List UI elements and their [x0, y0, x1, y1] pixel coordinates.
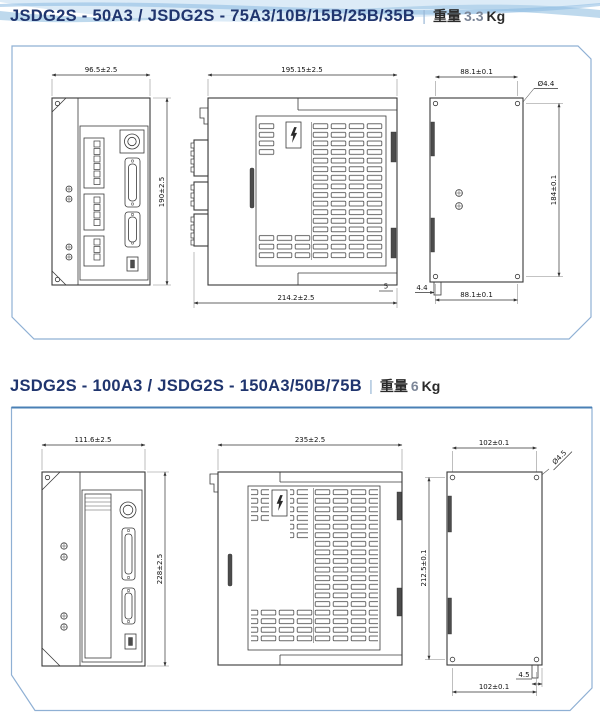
edge-slot [391, 228, 396, 258]
vent-grid [312, 122, 384, 260]
mounting-hook [210, 474, 218, 492]
dimension-label: 88.1±0.1 [460, 68, 493, 76]
dimension-label: 184±0.1 [550, 175, 558, 205]
weight-label: 重量 [433, 6, 461, 26]
width-dimension: 88.1±0.1 [436, 68, 518, 96]
dimension-label: 96.5±2.5 [85, 66, 118, 74]
dimension-label: 190±2.5 [158, 177, 166, 207]
front-view-small-drive: 96.5±2.5 [28, 62, 180, 306]
side-view-large-drive: 235±2.5 [188, 428, 412, 690]
weight-value: 6 [411, 378, 419, 394]
height-dimension: 228±2.5 [147, 472, 169, 666]
weight-unit: Kg [486, 8, 505, 24]
terminal-block-profile [191, 182, 208, 210]
width-dimension: 96.5±2.5 [52, 66, 150, 96]
dimension-label: 214.2±2.5 [277, 294, 314, 302]
vent-grid [251, 488, 269, 522]
height-dimension: 190±2.5 [153, 98, 171, 285]
height-dimension: 184±0.1 [526, 104, 563, 277]
back-view-small-drive: 88.1±0.1 Ø4.4 184±0.1 4.4 [415, 62, 587, 310]
mounting-hook [200, 108, 208, 124]
edge-slot [448, 496, 452, 532]
side-view-small-drive: 195.15±2.5 5 [186, 62, 412, 312]
bottom-tab [434, 282, 441, 295]
section1-header: JSDG2S - 50A3 / JSDG2S - 75A3/10B/15B/25… [10, 6, 505, 26]
edge-slot [448, 598, 452, 634]
dimension-label: 195.15±2.5 [281, 66, 323, 74]
dimension-label: 4.5 [518, 671, 529, 679]
section2-header: JSDG2S - 100A3 / JSDG2S - 150A3/50B/75B … [10, 376, 440, 396]
dimension-label: 228±2.5 [156, 554, 164, 584]
bottom-width-dimension: 88.1±0.1 [436, 284, 518, 304]
dimension-label: Ø4.4 [538, 80, 555, 88]
drive-body [42, 472, 145, 666]
vent-grid [258, 234, 312, 260]
dimension-label: 5 [384, 283, 388, 291]
edge-slot [431, 122, 435, 156]
width-dimension: 235±2.5 [218, 436, 402, 470]
dimension-label: 235±2.5 [295, 436, 325, 444]
section2-model-names: JSDG2S - 100A3 / JSDG2S - 150A3/50B/75B [10, 377, 362, 396]
dimension-label: 212.5±0.1 [420, 549, 428, 586]
bottom-tab [532, 665, 538, 678]
edge-slot [391, 132, 396, 162]
dimension-label: 4.4 [416, 284, 428, 292]
terminal-block-profile [191, 214, 208, 246]
dimension-label: 102±0.1 [479, 439, 509, 447]
dimension-label: 102±0.1 [479, 683, 509, 691]
mounting-plate [430, 98, 523, 282]
page: JSDG2S - 50A3 / JSDG2S - 75A3/10B/15B/25… [0, 0, 600, 720]
mounting-plate [447, 472, 542, 665]
edge-slot [397, 588, 402, 616]
vent-grid [314, 488, 378, 643]
width-dimension: 195.15±2.5 [208, 66, 397, 96]
back-view-large-drive: 102±0.1 Ø4.5 212.5±0.1 4.5 [420, 428, 592, 698]
vent-grid [251, 609, 313, 643]
handle-slot [228, 554, 232, 586]
weight-value: 3.3 [464, 8, 483, 24]
width-dimension: 111.6±2.5 [42, 436, 145, 470]
hole-diameter-callout: Ø4.4 [521, 80, 559, 105]
terminal-block-profile [191, 140, 208, 176]
weight-label: 重量 [380, 376, 408, 396]
front-view-large-drive: 111.6±2.5 [24, 428, 180, 690]
dimension-label: 111.6±2.5 [74, 436, 111, 444]
edge-slot [431, 218, 435, 252]
weight-unit: Kg [422, 378, 441, 394]
vent-grid [290, 488, 308, 540]
tab-offset-dimension: 4.4 [415, 284, 434, 293]
width-dimension: 102±0.1 [453, 439, 537, 472]
dimension-label: 88.1±0.1 [460, 291, 493, 299]
height-dimension: 212.5±0.1 [420, 478, 445, 660]
hole-diameter-callout: Ø4.5 [538, 446, 572, 478]
title-separator: | [369, 378, 373, 395]
section1-model-names: JSDG2S - 50A3 / JSDG2S - 75A3/10B/15B/25… [10, 7, 415, 26]
handle-slot [250, 168, 254, 208]
title-separator: | [422, 8, 426, 25]
edge-slot [397, 492, 402, 520]
vent-grid [258, 122, 276, 156]
